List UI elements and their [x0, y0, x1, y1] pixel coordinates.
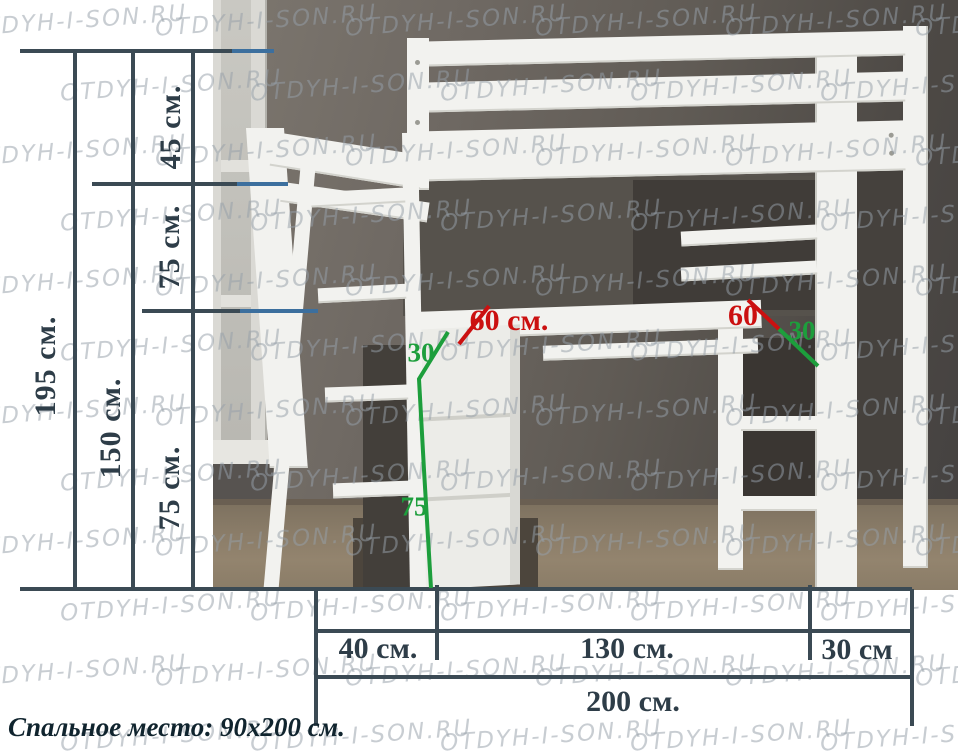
- dim-label-200: 200 см.: [586, 685, 680, 719]
- dim-label-150: 150 см.: [94, 378, 128, 479]
- dim-label-75-lower: 75 см.: [153, 446, 187, 531]
- green-label-30-right: 30: [789, 316, 816, 347]
- green-label-75: 75: [401, 492, 428, 523]
- green-label-30-left: 30: [408, 338, 435, 369]
- dimension-lines-layer: [0, 0, 958, 756]
- sleeping-area-caption: Спальное место: 90х200 см.: [8, 712, 345, 743]
- red-label-60-right: 60: [728, 299, 758, 333]
- dim-label-45: 45 см.: [154, 85, 188, 170]
- green-line-left: [419, 332, 448, 588]
- dim-label-30cm: 30 см: [821, 633, 892, 667]
- loft-bed-dimension-diagram: OTDYH-I-SON.RUOTDYH-I-SON.RUOTDYH-I-SON.…: [0, 0, 958, 756]
- dim-label-40: 40 см.: [339, 632, 418, 666]
- red-label-60-left: 60 см.: [470, 304, 549, 338]
- dim-label-75-upper: 75 см.: [153, 205, 187, 290]
- dim-label-130: 130 см.: [580, 632, 674, 666]
- dim-label-195: 195 см.: [29, 316, 63, 417]
